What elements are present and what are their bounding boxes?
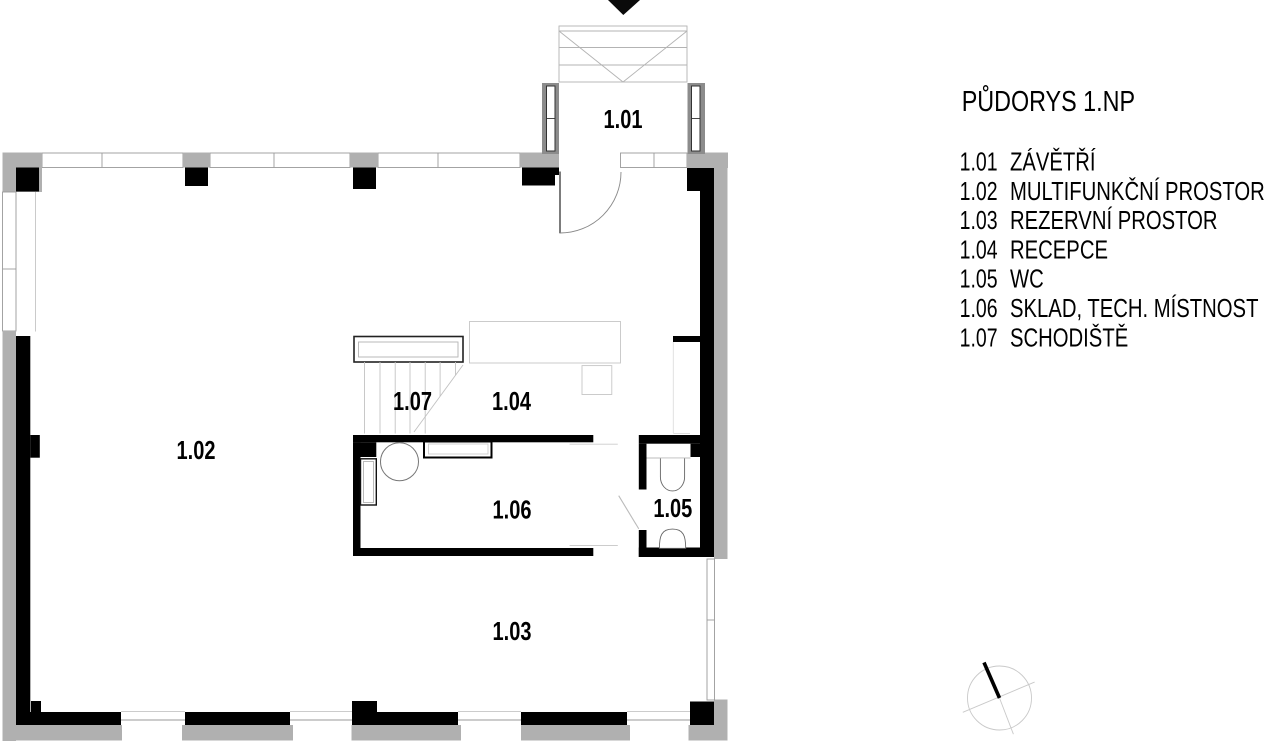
svg-text:1.01: 1.01	[960, 147, 998, 176]
svg-text:1.07: 1.07	[960, 323, 998, 352]
svg-text:1.06: 1.06	[493, 495, 532, 524]
svg-text:PŮDORYS 1.NP: PŮDORYS 1.NP	[962, 83, 1135, 117]
svg-text:1.02: 1.02	[960, 176, 998, 205]
svg-text:1.03: 1.03	[960, 205, 998, 234]
svg-text:MULTIFUNKČNÍ PROSTOR: MULTIFUNKČNÍ PROSTOR	[1010, 175, 1265, 205]
svg-text:1.05: 1.05	[653, 493, 692, 522]
svg-text:ZÁVĚTŘÍ: ZÁVĚTŘÍ	[1010, 147, 1096, 176]
svg-text:1.03: 1.03	[493, 616, 532, 645]
svg-text:WC: WC	[1010, 264, 1044, 293]
svg-text:SCHODIŠTĚ: SCHODIŠTĚ	[1010, 322, 1128, 352]
svg-text:REZERVNÍ PROSTOR: REZERVNÍ PROSTOR	[1010, 206, 1218, 235]
svg-text:1.05: 1.05	[960, 264, 998, 293]
svg-text:RECEPCE: RECEPCE	[1010, 235, 1108, 264]
svg-text:1.02: 1.02	[177, 435, 216, 464]
svg-text:1.04: 1.04	[960, 235, 998, 264]
svg-text:1.07: 1.07	[393, 386, 432, 415]
svg-text:1.04: 1.04	[492, 386, 531, 415]
svg-text:1.01: 1.01	[604, 104, 643, 133]
svg-text:SKLAD, TECH. MÍSTNOST: SKLAD, TECH. MÍSTNOST	[1010, 294, 1258, 323]
svg-text:1.06: 1.06	[960, 293, 998, 322]
